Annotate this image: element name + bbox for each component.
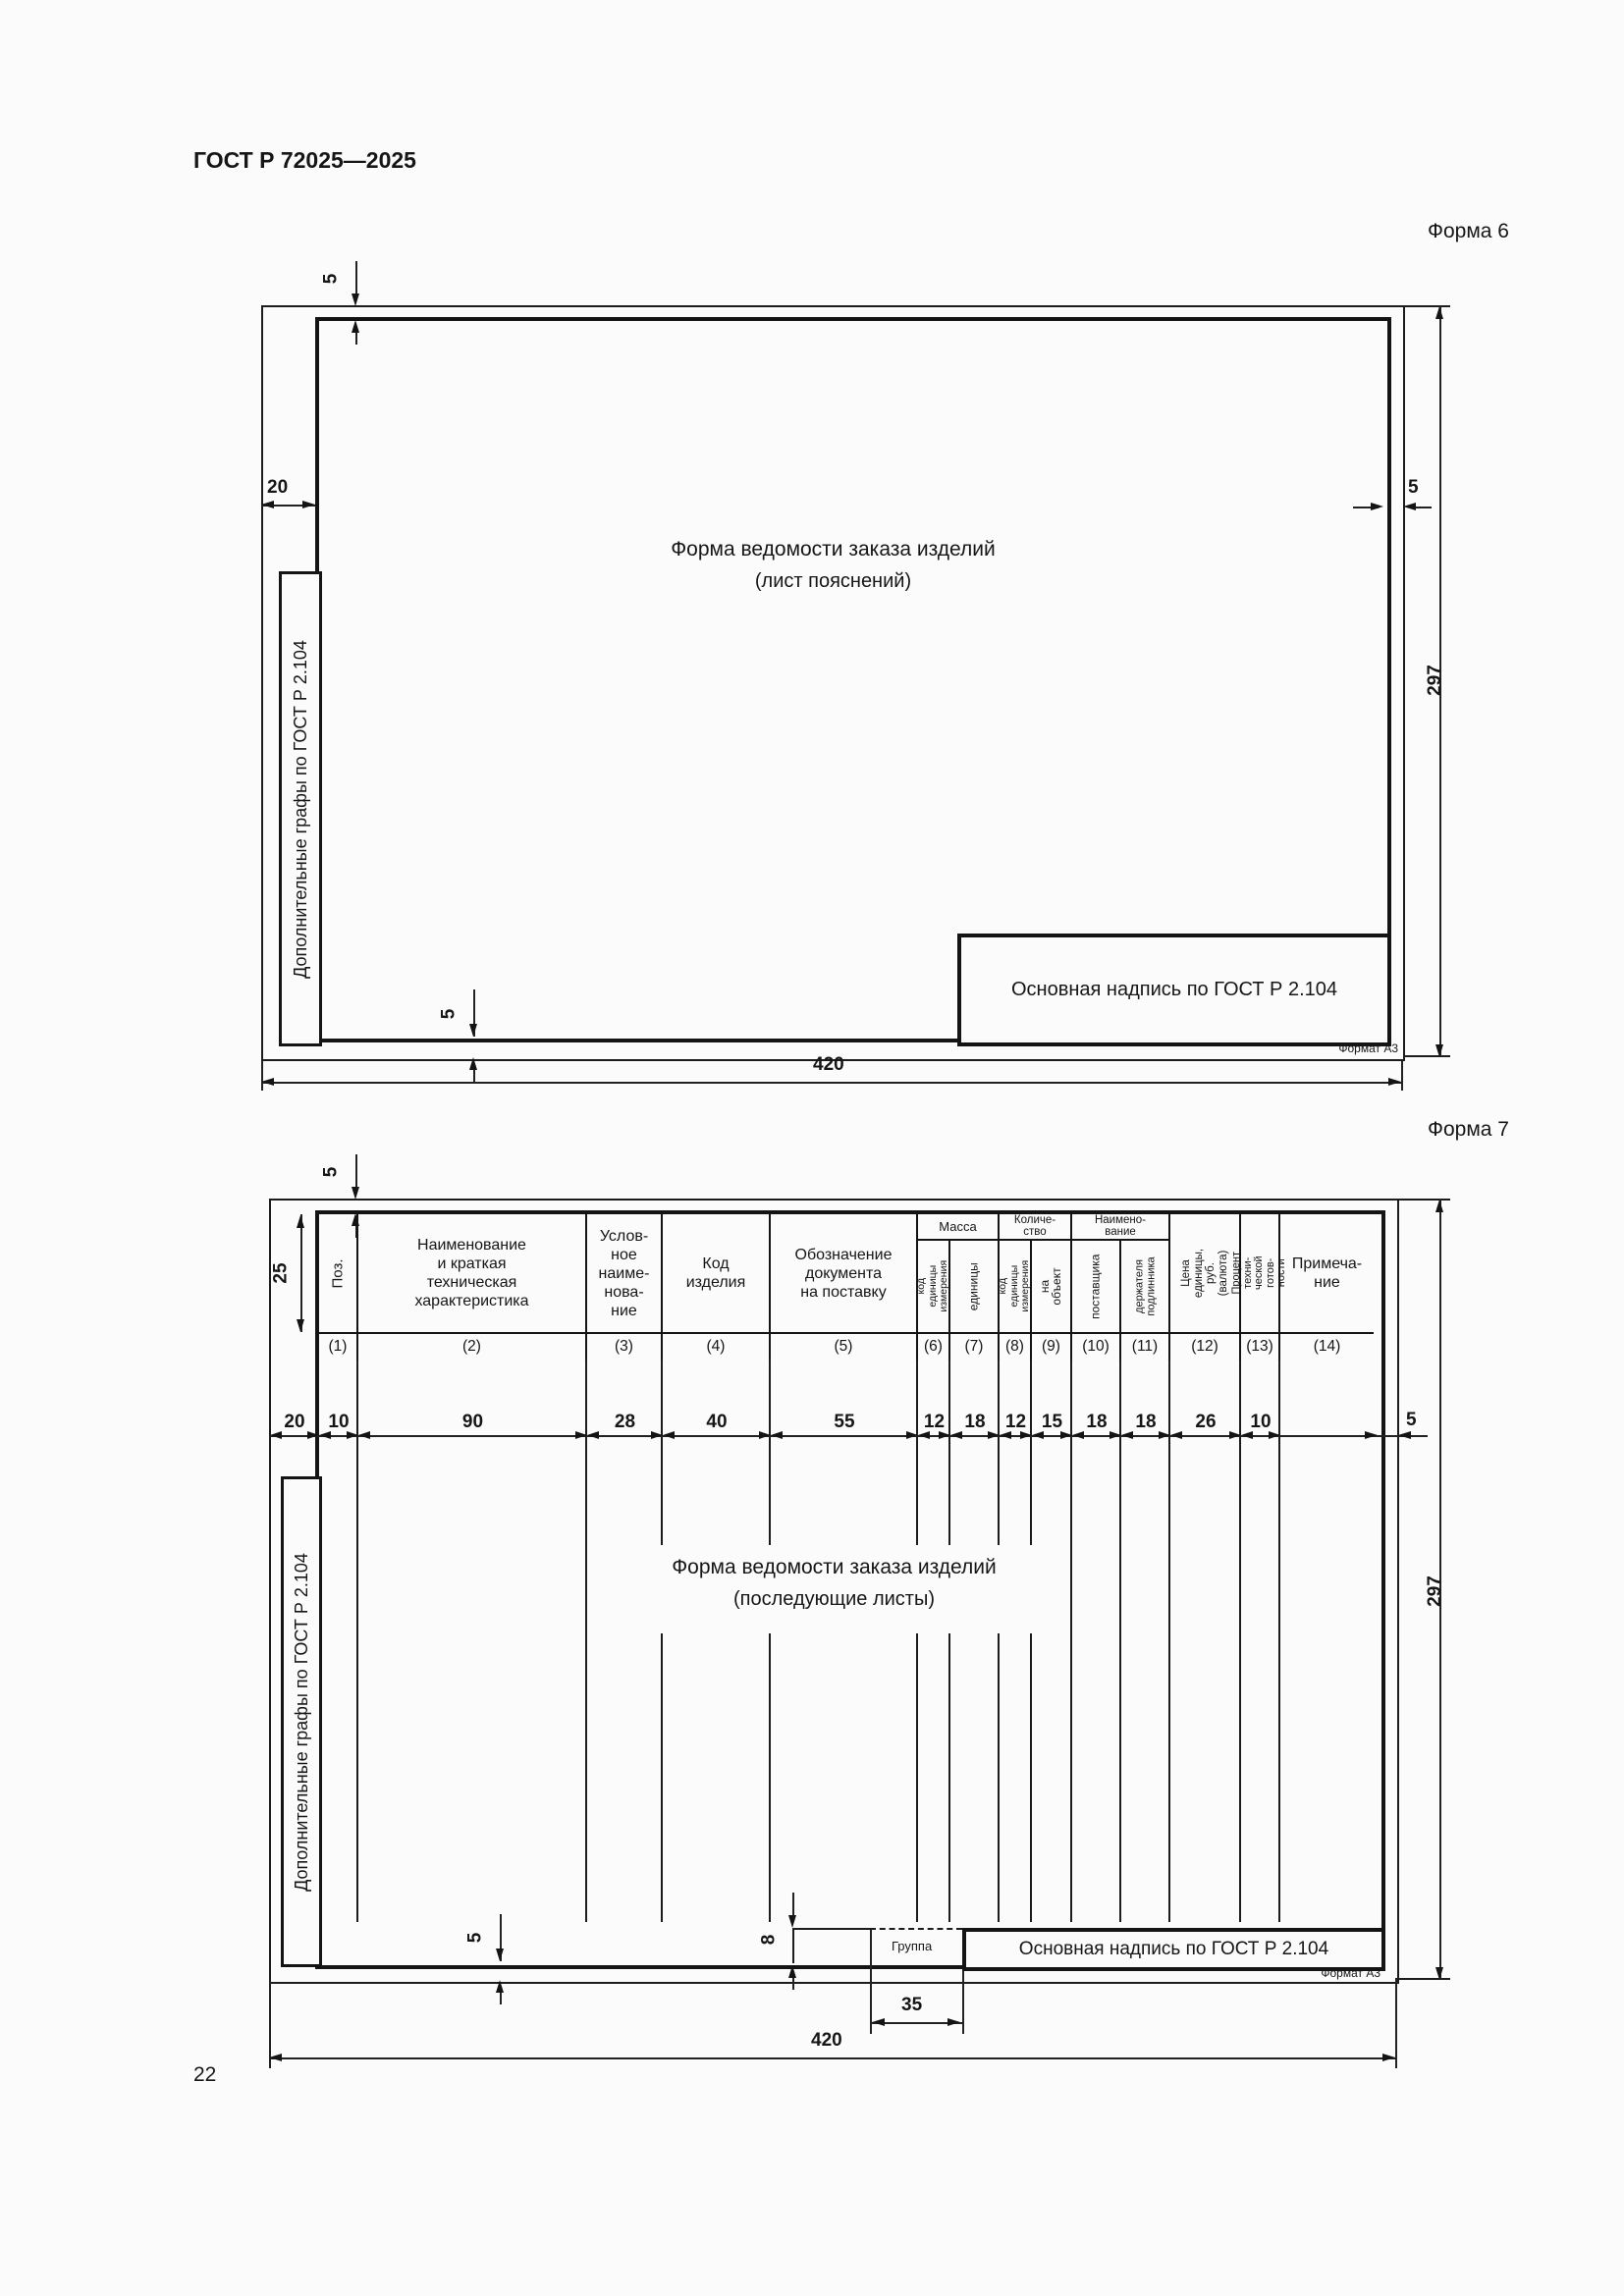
form7-col-header-qty-unit-code: код единицы измерения [1000, 1241, 1032, 1332]
col-number: (5) [771, 1334, 918, 1360]
extension-line [1395, 1980, 1397, 2068]
form7-center-line2: (последующие листы) [269, 1583, 1399, 1616]
col-number: (10) [1072, 1334, 1121, 1360]
dim-arrow [1388, 1078, 1401, 1086]
dim-arrow [1398, 1431, 1411, 1439]
dim-arrow [352, 1187, 359, 1200]
col-number: (8) [1000, 1334, 1032, 1360]
extension-line [1401, 1061, 1403, 1091]
form7-side-box-label: Дополнительные графы по ГОСТ Р 2.104 [292, 1553, 312, 1892]
col-label: Примеча- ние [1292, 1255, 1362, 1292]
dim-arrow [352, 320, 359, 333]
dim-label: 28 [587, 1412, 663, 1451]
group-label: Масса [918, 1214, 998, 1241]
form6-side-box-label: Дополнительные графы по ГОСТ Р 2.104 [291, 640, 311, 979]
dim-label: 18 [950, 1412, 1000, 1451]
dim-label: 12 [1000, 1412, 1032, 1451]
dim-label: 18 [1121, 1412, 1170, 1451]
col-label: код единицы измерения [998, 1260, 1032, 1312]
dim-line [792, 1978, 794, 1990]
group-cell-left-line [792, 1928, 794, 1963]
form7-title-block-label: Основная надпись по ГОСТ Р 2.104 [1019, 1939, 1328, 1960]
form7-group-quantity: Количе- ство код единицы измерения на об… [1000, 1214, 1072, 1332]
col-label: Цена единицы, руб. (валюта) [1180, 1239, 1229, 1308]
dim-arrow [1435, 1044, 1443, 1057]
form7-col-header-readiness-percent: Процент техни- ческой готов- ности [1241, 1214, 1280, 1332]
col-label: Поз. [329, 1258, 348, 1288]
dim-arrow [1435, 1200, 1443, 1212]
col-number: (1) [319, 1334, 358, 1360]
dim-line [1416, 507, 1432, 508]
dim-arrow [1365, 1431, 1378, 1439]
dim-label: 18 [1072, 1412, 1121, 1451]
group-cell-top-line [792, 1928, 870, 1930]
form7-col-header-conventional-name: Услов- ное наиме- нова- ние [587, 1214, 663, 1332]
dim-label: 90 [358, 1412, 587, 1451]
col-number: (6) [918, 1334, 950, 1360]
form6-dim-width: 420 [813, 1054, 844, 1076]
dim-label: 20 [270, 1412, 319, 1451]
dim-arrow [788, 1965, 796, 1978]
form7-col-header-note: Примеча- ние [1280, 1214, 1374, 1332]
col-number: (14) [1280, 1334, 1374, 1360]
dim-arrow [261, 501, 274, 508]
dim-label: 26 [1170, 1412, 1241, 1451]
form7-col-header-qty-per-object: на объект [1032, 1241, 1070, 1332]
col-label: Процент техни- ческой готов- ности [1231, 1252, 1288, 1295]
group-label: Количе- ство [1000, 1214, 1070, 1241]
dim-arrow [269, 2054, 282, 2061]
dim-arrow [872, 2018, 885, 2026]
form6-center-line2: (лист пояснений) [261, 565, 1405, 598]
dim-line [269, 2057, 1395, 2059]
extension-line [1405, 1055, 1450, 1057]
group-cells: поставщика держателя подлинника [1072, 1241, 1168, 1332]
form7-header-row: Поз. Наименование и краткая техническая … [319, 1214, 1374, 1334]
form7-col-header-supplier: поставщика [1072, 1241, 1121, 1332]
form7-dim-header-height: 25 [271, 1262, 293, 1283]
col-label: держателя подлинника [1135, 1256, 1158, 1315]
col-number: (13) [1241, 1334, 1280, 1360]
dim-arrow [1403, 503, 1416, 510]
dim-arrow [496, 1949, 504, 1961]
form7-numbers-row: (1) (2) (3) (4) (5) (6) (7) (8) (9) (10)… [319, 1334, 1374, 1360]
form7-center-line1: Форма ведомости заказа изделий [269, 1551, 1399, 1583]
form7-dim-width: 420 [811, 2030, 842, 2052]
form7-dimension-row: 20 10 90 28 40 55 12 18 12 15 18 18 26 1… [270, 1412, 1398, 1451]
dim-label: 55 [771, 1412, 918, 1451]
dim-arrow [947, 2018, 960, 2026]
group-cells: код единицы измерения на объект [1000, 1241, 1070, 1332]
dim-arrow [1435, 306, 1443, 319]
form7-center-text: Форма ведомости заказа изделий (последую… [269, 1551, 1399, 1616]
dim-arrow [1382, 2054, 1395, 2061]
form6-title-block-label: Основная надпись по ГОСТ Р 2.104 [1011, 979, 1337, 1001]
col-number: (2) [358, 1334, 587, 1360]
dim-arrow [469, 1024, 477, 1037]
form6-label: Форма 6 [1428, 220, 1509, 243]
dim-line [473, 1070, 475, 1082]
doc-code: ГОСТ Р 72025—2025 [193, 147, 416, 174]
form7-col-header-name: Наименование и краткая техническая харак… [358, 1214, 587, 1332]
dim-arrow [496, 1980, 504, 1993]
form7-format-label: Формат А3 [1321, 1966, 1380, 1980]
form6-dim-top-gap: 5 [320, 274, 342, 285]
dim-label: 10 [319, 1412, 358, 1451]
form6-additional-columns-box: Дополнительные графы по ГОСТ Р 2.104 [279, 571, 322, 1046]
form7-col-header-mass-unit-code: код единицы измерения [918, 1241, 950, 1332]
dim-arrow [261, 1078, 274, 1086]
dim-line [500, 1993, 502, 2004]
form7-dim-right-gap: 5 [1406, 1410, 1417, 1431]
form7-col-header-product-code: Код изделия [663, 1214, 771, 1332]
col-label: Наименование и краткая техническая харак… [414, 1236, 528, 1310]
form6-format-label: Формат А3 [1338, 1041, 1398, 1055]
dim-arrow [297, 1319, 304, 1332]
form6-dim-height: 297 [1425, 665, 1446, 696]
form7-label: Форма 7 [1428, 1118, 1509, 1142]
col-number: (11) [1121, 1334, 1170, 1360]
document-page: ГОСТ Р 72025—2025 22 Форма 6 Форма ведом… [0, 0, 1624, 2296]
dim-arrow [352, 294, 359, 306]
col-number: (7) [950, 1334, 1000, 1360]
form7-dim-top-gap: 5 [320, 1167, 342, 1178]
extension-line [1405, 305, 1450, 307]
form7-col-header-poz: Поз. [319, 1214, 358, 1332]
extension-line [261, 1061, 263, 1091]
dim-arrow [469, 1057, 477, 1070]
form6-center-text: Форма ведомости заказа изделий (лист поя… [261, 533, 1405, 598]
form7-col-header-mass-units: единицы [950, 1241, 999, 1332]
dim-label: 15 [1032, 1412, 1072, 1451]
form6-dim-left-margin: 20 [267, 477, 288, 499]
form7-dim-group-width: 35 [901, 1995, 922, 2016]
col-label: поставщика [1090, 1254, 1102, 1318]
dim-line [355, 333, 357, 345]
form7-group-naming: Наимено- вание поставщика держателя подл… [1072, 1214, 1170, 1332]
dim-label: 40 [663, 1412, 771, 1451]
extension-line [962, 1965, 964, 2034]
col-label: Услов- ное наиме- нова- ние [599, 1227, 650, 1320]
dim-line [355, 1154, 357, 1188]
col-label: код единицы измерения [916, 1260, 950, 1312]
form7-col-header-original-holder: держателя подлинника [1121, 1241, 1170, 1332]
group-cells: код единицы измерения единицы [918, 1241, 998, 1332]
form7-additional-columns-box: Дополнительные графы по ГОСТ Р 2.104 [281, 1476, 322, 1967]
col-number: (12) [1170, 1334, 1241, 1360]
group-label: Наимено- вание [1072, 1214, 1168, 1241]
dim-arrow [302, 501, 315, 508]
col-number: (3) [587, 1334, 663, 1360]
col-label: единицы [969, 1262, 981, 1310]
dim-label: 10 [1241, 1412, 1280, 1451]
col-number: (4) [663, 1334, 771, 1360]
form6-center-line1: Форма ведомости заказа изделий [261, 533, 1405, 565]
dim-line [261, 1082, 1401, 1084]
form6-dim-right-gap: 5 [1408, 477, 1419, 499]
form7-dim-bottom-gap: 5 [464, 1933, 486, 1944]
dim-line [300, 1214, 302, 1332]
form6-title-block: Основная надпись по ГОСТ Р 2.104 [957, 934, 1391, 1046]
form7-group-mass: Масса код единицы измерения единицы [918, 1214, 1000, 1332]
form7-col-header-supply-document: Обозначение документа на поставку [771, 1214, 918, 1332]
form7-dim-group-height: 8 [758, 1935, 780, 1946]
dim-arrow [1371, 503, 1383, 510]
form7-title-block: Основная надпись по ГОСТ Р 2.104 [962, 1928, 1385, 1971]
form6-dim-bottom-gap: 5 [438, 1009, 460, 1020]
col-number: (9) [1032, 1334, 1072, 1360]
page-number: 22 [193, 2063, 216, 2087]
dim-arrow [1435, 1967, 1443, 1980]
group-cell-dashed-line [870, 1928, 962, 1930]
col-label: Обозначение документа на поставку [795, 1246, 893, 1302]
dim-arrow [297, 1215, 304, 1228]
col-label: на объект [1040, 1267, 1062, 1306]
dim-label: 12 [918, 1412, 950, 1451]
dim-line [355, 261, 357, 294]
form7-dim-height: 297 [1425, 1575, 1446, 1607]
col-label: Код изделия [686, 1255, 746, 1292]
form7-group-cell-label: Группа [892, 1939, 932, 1953]
